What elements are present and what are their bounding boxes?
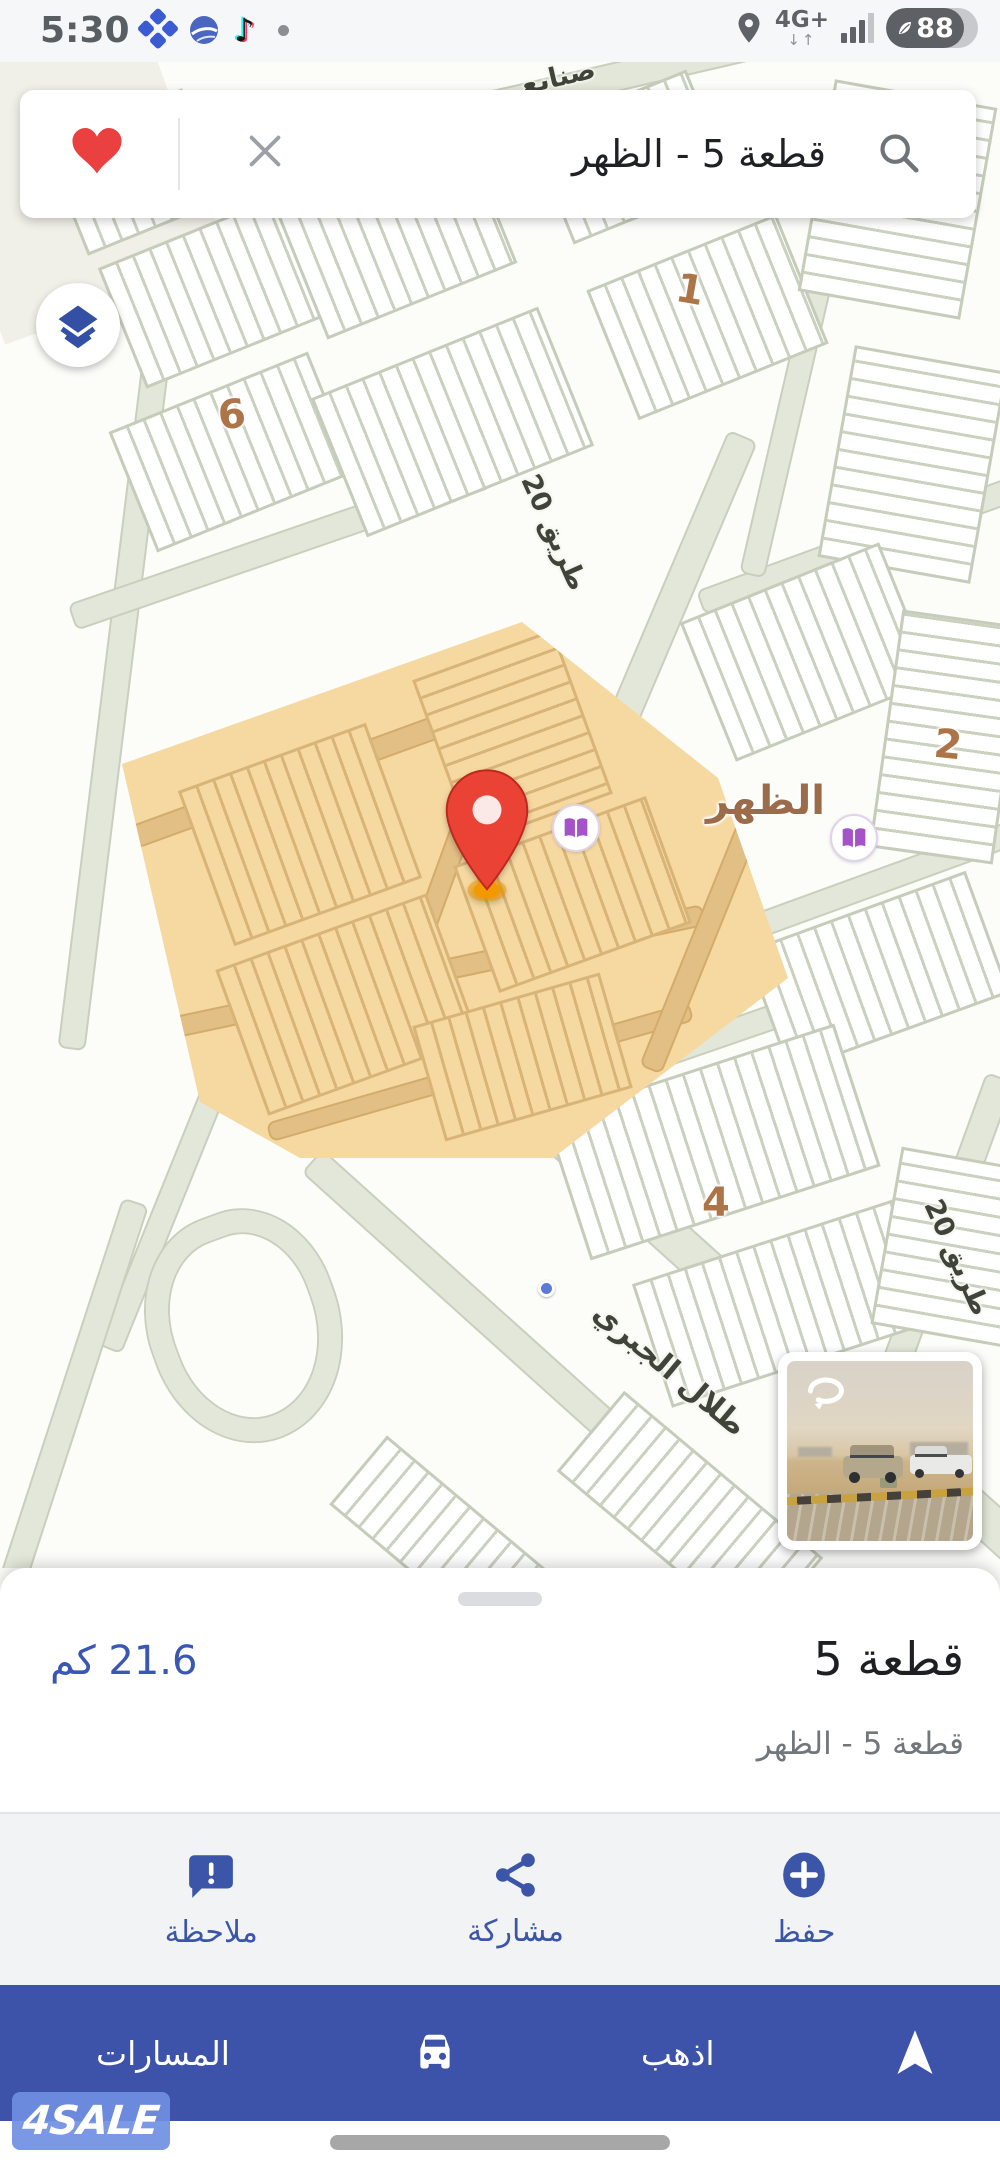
poi-book-marker[interactable]	[552, 804, 600, 852]
layers-icon	[52, 299, 104, 351]
search-bar[interactable]: قطعة 5 - الظهر	[20, 90, 976, 218]
go-button[interactable]	[894, 2028, 936, 2078]
battery-saver-leaf-icon	[896, 19, 914, 37]
map-road	[0, 1197, 149, 1568]
clear-search-icon[interactable]	[242, 128, 288, 174]
drive-mode-button[interactable]	[409, 2030, 461, 2076]
place-action-bar: حفظ مشاركة ملاحظة	[0, 1812, 1000, 1985]
poi-book-marker[interactable]	[830, 814, 878, 862]
place-bottom-sheet[interactable]: قطعة 5 21.6 كم قطعة 5 - الظهر	[0, 1568, 1000, 1812]
search-icon[interactable]	[876, 130, 922, 176]
car-icon	[409, 2030, 461, 2076]
add-circle-icon	[779, 1849, 829, 1901]
place-title: قطعة 5	[814, 1632, 964, 1686]
battery-indicator: 88	[886, 8, 978, 48]
street-view-vehicle	[910, 1455, 972, 1474]
map-layers-button[interactable]	[36, 283, 120, 367]
signal-strength-icon	[841, 13, 874, 43]
book-icon	[838, 822, 870, 854]
poi-dot-marker[interactable]	[538, 1280, 555, 1297]
street-view-vehicle	[843, 1456, 903, 1478]
network-indicator: 4G+ ↓↑	[775, 9, 829, 48]
clock: 5:30	[40, 10, 130, 51]
map-block	[329, 1435, 571, 1568]
app-screen: طريق 20 طريق 20 طلال الجبري صنايع 1 6 2 …	[0, 0, 1000, 2166]
routes-button[interactable]: المسارات	[96, 2034, 230, 2073]
road-label-20-upper: طريق 20	[515, 470, 594, 596]
go-label[interactable]: اذهب	[641, 2034, 715, 2073]
map-block	[818, 345, 1000, 584]
share-button[interactable]: مشاركة	[467, 1850, 564, 1949]
location-active-icon	[735, 11, 763, 45]
destination-pin[interactable]	[440, 768, 534, 905]
street-view-photo	[787, 1361, 973, 1541]
street-view-rotate-icon	[797, 1371, 855, 1411]
favorite-heart-icon[interactable]	[72, 128, 122, 174]
search-divider	[178, 118, 180, 190]
book-icon	[560, 812, 592, 844]
app-notification-icon-globe	[188, 14, 220, 46]
4sale-watermark: 4SALE	[12, 2092, 170, 2150]
map-canvas[interactable]: طريق 20 طريق 20 طلال الجبري صنايع 1 6 2 …	[0, 62, 1000, 1568]
notification-dot	[278, 25, 289, 36]
note-button[interactable]: ملاحظة	[165, 1849, 258, 1950]
save-button[interactable]: حفظ	[773, 1849, 835, 1950]
app-notification-icon-tiktok: ♪	[234, 14, 254, 46]
place-distance: 21.6 كم	[50, 1638, 197, 1684]
street-view-thumbnail[interactable]	[778, 1352, 982, 1550]
block-number-2: 2	[932, 721, 964, 770]
search-query-text[interactable]: قطعة 5 - الظهر	[572, 90, 826, 218]
app-notification-icon-4sale	[135, 7, 180, 52]
navigate-arrow-icon	[894, 2028, 936, 2078]
status-bar: 5:30 ♪ 4G+ ↓↑	[0, 0, 1000, 62]
home-indicator[interactable]	[330, 2135, 670, 2150]
district-label: الظهر	[706, 778, 825, 824]
note-icon	[186, 1849, 236, 1901]
place-subtitle: قطعة 5 - الظهر	[757, 1726, 964, 1762]
block-number-6: 6	[216, 391, 248, 440]
share-icon	[492, 1850, 540, 1900]
block-number-4: 4	[702, 1180, 730, 1226]
sheet-drag-handle[interactable]	[458, 1592, 542, 1606]
